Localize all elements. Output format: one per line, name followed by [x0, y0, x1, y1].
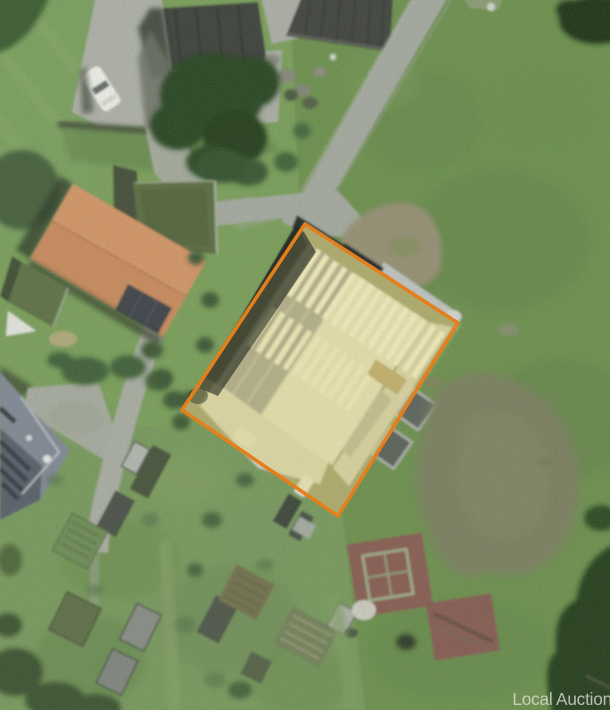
svg-text:Local Auction: Local Auction	[512, 689, 610, 709]
